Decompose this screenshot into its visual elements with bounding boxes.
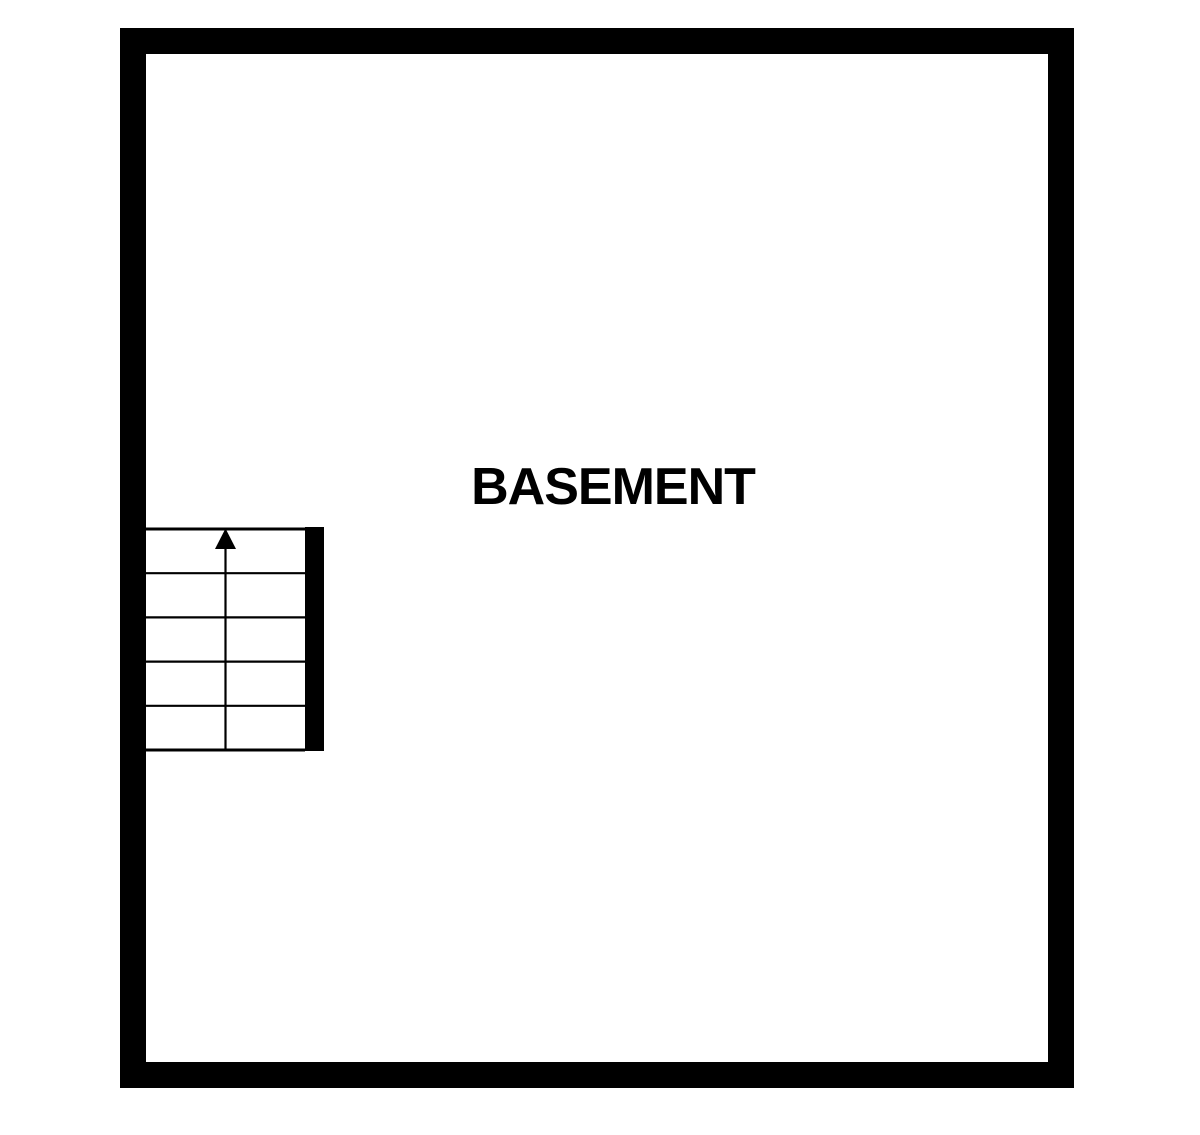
stair-stringer-bar xyxy=(305,527,324,751)
staircase xyxy=(146,527,324,752)
room-label: BASEMENT xyxy=(471,457,755,517)
floorplan: BASEMENT xyxy=(0,0,1200,1135)
